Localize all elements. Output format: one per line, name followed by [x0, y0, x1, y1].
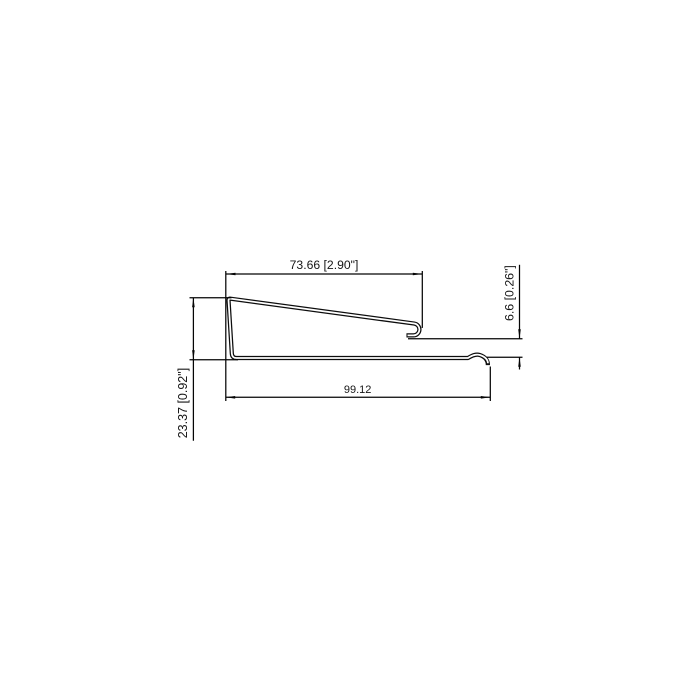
svg-text:99.12: 99.12 — [344, 384, 372, 396]
svg-text:23.37 [0.92"]: 23.37 [0.92"] — [176, 368, 190, 438]
svg-text:73.66 [2.90"]: 73.66 [2.90"] — [290, 258, 359, 272]
svg-text:6.6 [0.26"]: 6.6 [0.26"] — [503, 265, 517, 321]
